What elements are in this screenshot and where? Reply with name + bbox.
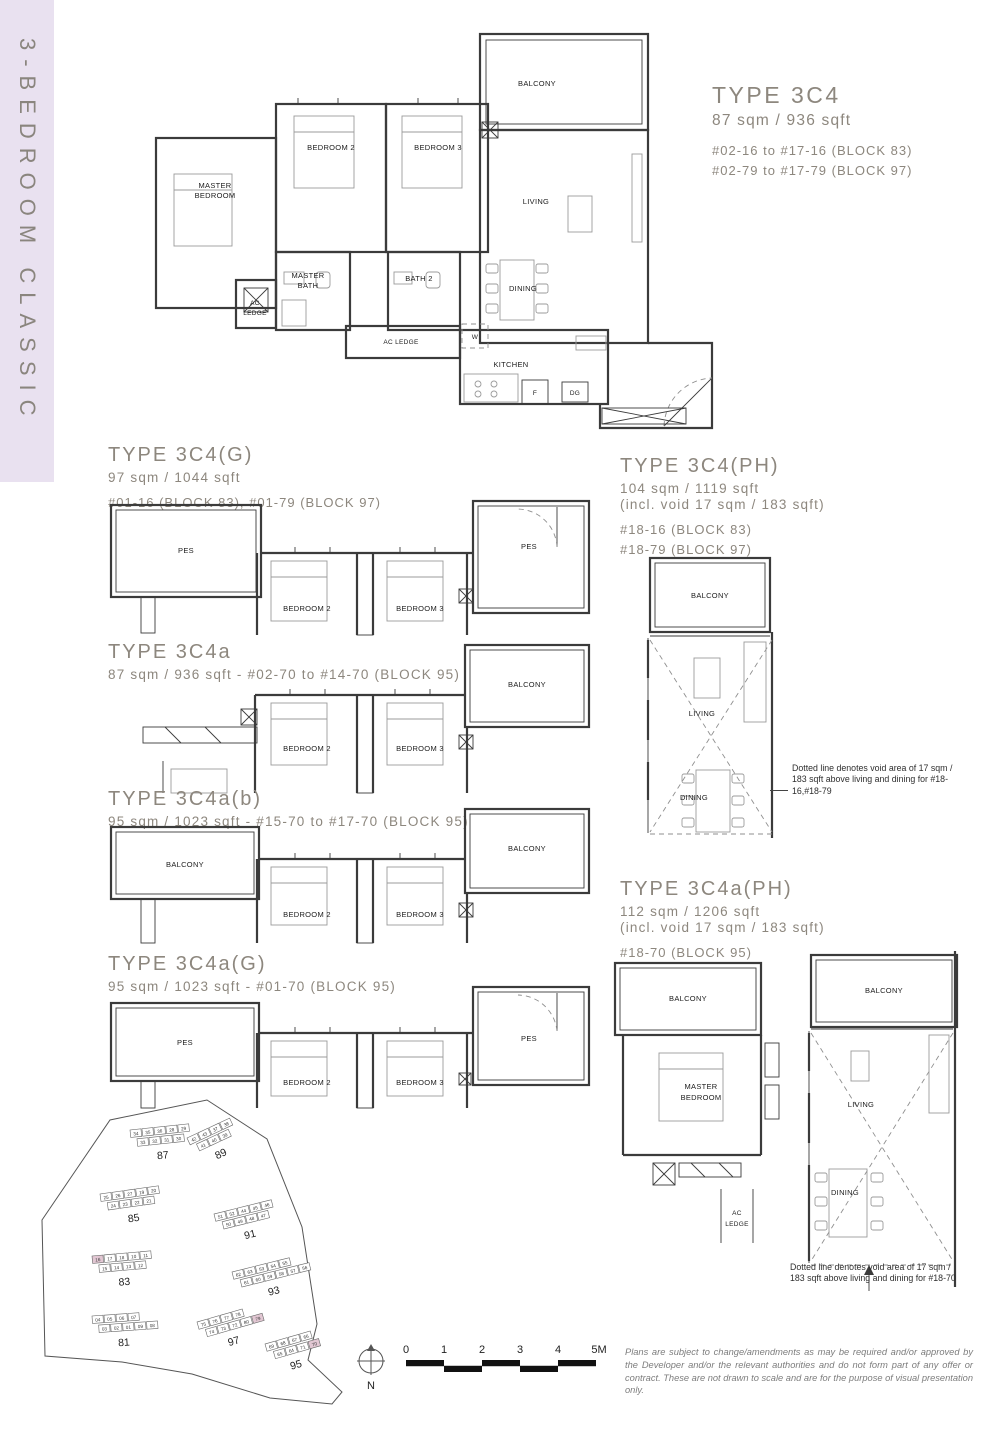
site-stack-label: 09 (138, 1324, 144, 1329)
type-3c4g-title: TYPE 3C4(G) (108, 444, 381, 467)
label-f: F (533, 390, 537, 397)
disclaimer-text: Plans are subject to change/amendments a… (625, 1346, 973, 1397)
label-kitchen: KITCHEN (493, 360, 528, 369)
plan-3c4aph-furniture (659, 1035, 949, 1237)
site-block-number: 93 (267, 1284, 281, 1299)
plan-3c4g-drawing: PES BEDROOM 2 BEDROOM 3 PES (105, 493, 595, 635)
plan-3c4ab-drawing: BALCONY BALCONY BEDROOM 2 BEDROOM 3 (105, 803, 595, 943)
plan-3c4a-labels: BALCONY BEDROOM 2 BEDROOM 3 (283, 680, 546, 753)
site-stack-label: 28 (169, 1127, 175, 1133)
label-pes: PES (178, 546, 194, 555)
site-block-number: 83 (118, 1276, 131, 1289)
site-stack-label: 29 (181, 1126, 187, 1132)
type-3c4-info: TYPE 3C4 87 sqm / 936 sqft #02-16 to #17… (712, 82, 912, 180)
type-3c4aph-title: TYPE 3C4a(PH) (620, 878, 825, 901)
site-stack-label: 07 (131, 1315, 137, 1320)
site-plan-clusters: 3435362829333231308742433738414039892526… (92, 1118, 326, 1378)
label-ac-2: LEDGE (243, 310, 267, 317)
site-stack-label: 18 (119, 1255, 125, 1260)
label-ac-2: LEDGE (725, 1221, 749, 1228)
label-dg: DG (570, 390, 580, 397)
site-stack-label: 14 (114, 1265, 120, 1270)
label-master-1: MASTER (198, 181, 231, 190)
scale-bar: 0 1 2 3 4 5M (398, 1340, 623, 1380)
site-stack-label: 10 (131, 1254, 137, 1259)
site-stack-label: 35 (145, 1130, 151, 1136)
label-bedroom3: BEDROOM 3 (396, 910, 444, 919)
label-pes: PES (177, 1038, 193, 1047)
label-bath2: BATH 2 (405, 274, 433, 283)
site-stack-label: 01 (126, 1325, 132, 1330)
label-balcony: BALCONY (669, 994, 707, 1003)
type-3c4aph-void: (incl. void 17 sqm / 183 sqft) (620, 920, 825, 935)
site-block-number: 85 (127, 1212, 140, 1226)
plan-3c4ph-drawing: BALCONY LIVING DINING (638, 548, 788, 848)
label-living: LIVING (848, 1100, 874, 1109)
label-bedroom2: BEDROOM 2 (307, 143, 355, 152)
site-block-83: 16171810111514131283 (92, 1251, 154, 1291)
label-balcony: BALCONY (691, 591, 729, 600)
north-label: N (367, 1380, 375, 1392)
scale-label-2: 2 (479, 1344, 485, 1356)
label-mbath-1: MASTER (291, 271, 324, 280)
label-pes: PES (521, 542, 537, 551)
site-block-97: 75767778747372807997 (197, 1304, 269, 1356)
label-bedroom3: BEDROOM 3 (396, 744, 444, 753)
site-block-number: 89 (213, 1146, 229, 1162)
label-balcony: BALCONY (508, 680, 546, 689)
label-dining: DINING (680, 793, 708, 802)
site-stack-label: 04 (95, 1317, 101, 1322)
site-block-85: 25262719202423222185 (100, 1186, 163, 1229)
scale-label-3: 3 (517, 1344, 523, 1356)
label-bedroom2: BEDROOM 2 (283, 1078, 331, 1087)
label-ac-1: AC (250, 300, 260, 307)
scale-label-5m: 5M (591, 1344, 606, 1356)
type-3c4aph-area: 112 sqm / 1206 sqft (620, 904, 825, 919)
note-leader-line (770, 790, 788, 791)
category-label: 3-BEDROOM CLASSIC (14, 38, 40, 425)
plan-3c4-walls (156, 34, 712, 428)
site-block-93: 626353545561605958575693 (232, 1253, 315, 1306)
label-mbath-2: BATH (298, 281, 319, 290)
unit-range-line: #02-79 to #17-79 (BLOCK 97) (712, 161, 912, 181)
label-living: LIVING (689, 709, 715, 718)
site-block-81: 04050607030201090881 (92, 1311, 159, 1350)
void-note-3c4ph: Dotted line denotes void area of 17 sqm … (792, 763, 964, 797)
site-block-number: 91 (243, 1228, 257, 1243)
site-stack-label: 06 (119, 1316, 125, 1321)
label-ac-1: AC (732, 1210, 742, 1217)
site-stack-label: 12 (138, 1263, 144, 1268)
site-stack-label: 34 (133, 1131, 139, 1137)
site-block-number: 81 (118, 1336, 131, 1349)
plan-3c4a-walls (143, 645, 589, 793)
label-balcony: BALCONY (865, 986, 903, 995)
site-stack-label: 13 (126, 1264, 132, 1269)
plan-3c4-furniture (174, 116, 642, 402)
site-stack-label: 11 (143, 1253, 149, 1258)
site-block-95: 696867666564717095 (265, 1329, 326, 1377)
plan-3c4-labels: BALCONY BEDROOM 2 BEDROOM 3 MASTER BEDRO… (195, 79, 581, 397)
site-stack-label: 05 (107, 1316, 113, 1321)
site-stack-label: 33 (140, 1140, 146, 1146)
site-stack-label: 17 (107, 1256, 113, 1261)
site-stack-label: 31 (164, 1137, 170, 1143)
label-pes: PES (521, 1034, 537, 1043)
label-bedroom2: BEDROOM 2 (283, 744, 331, 753)
label-balcony: BALCONY (508, 844, 546, 853)
type-3c4-units: #02-16 to #17-16 (BLOCK 83) #02-79 to #1… (712, 141, 912, 180)
label-balcony: BALCONY (166, 860, 204, 869)
label-living: LIVING (523, 197, 549, 206)
label-bedroom2: BEDROOM 2 (283, 910, 331, 919)
label-bedroom2: BEDROOM 2 (283, 604, 331, 613)
site-stack-label: 30 (176, 1136, 182, 1142)
site-plan: 3435362829333231308742433738414039892526… (30, 1092, 375, 1432)
site-block-87: 34353628293332313087 (130, 1124, 192, 1165)
scale-label-0: 0 (403, 1344, 409, 1356)
type-3c4-title: TYPE 3C4 (712, 82, 912, 109)
type-3c4-area: 87 sqm / 936 sqft (712, 112, 912, 130)
unit-range-line: #18-16 (BLOCK 83) (620, 520, 825, 540)
type-3c4ph-void: (incl. void 17 sqm / 183 sqft) (620, 497, 825, 512)
void-note-3c4aph: Dotted line denotes void area of 17 sqm … (790, 1262, 962, 1285)
site-stack-label: 08 (150, 1323, 156, 1328)
scale-label-1: 1 (441, 1344, 447, 1356)
plan-3c4g-walls (111, 501, 589, 635)
label-bedroom3: BEDROOM 3 (396, 604, 444, 613)
site-stack-label: 32 (152, 1138, 158, 1144)
plan-3c4ag-walls (111, 987, 589, 1108)
plan-3c4-drawing: BALCONY BEDROOM 2 BEDROOM 3 MASTER BEDRO… (148, 26, 723, 438)
type-3c4ph-area: 104 sqm / 1119 sqft (620, 481, 825, 496)
plan-3c4aph-drawing: BALCONY MASTER BEDROOM AC LEDGE BALCONY … (603, 943, 973, 1293)
scale-bar-segments (406, 1360, 596, 1372)
plan-3c4a-drawing: BALCONY BEDROOM 2 BEDROOM 3 (105, 643, 595, 793)
site-stack-label: 15 (102, 1266, 108, 1271)
label-master-1: MASTER (684, 1082, 717, 1091)
site-stack-label: 36 (157, 1128, 163, 1134)
site-stack-label: 02 (114, 1325, 120, 1330)
type-3c4ph-info: TYPE 3C4(PH) 104 sqm / 1119 sqft (incl. … (620, 455, 825, 559)
label-acledge: AC LEDGE (383, 339, 419, 346)
site-block-91: 51524445465049484791 (214, 1200, 280, 1248)
unit-range-line: #02-16 to #17-16 (BLOCK 83) (712, 141, 912, 161)
type-3c4ph-title: TYPE 3C4(PH) (620, 455, 825, 478)
label-bedroom3: BEDROOM 3 (414, 143, 462, 152)
label-w: W (472, 334, 479, 341)
label-dining: DINING (831, 1188, 859, 1197)
site-stack-label: 03 (102, 1326, 108, 1331)
label-dining: DINING (509, 284, 537, 293)
site-block-89: 4243373841403989 (187, 1118, 244, 1170)
floorplan-page: 3-BEDROOM CLASSIC (0, 0, 1000, 1434)
site-block-number: 97 (227, 1334, 242, 1349)
plan-3c4ab-walls (111, 809, 589, 943)
label-master-2: BEDROOM (681, 1093, 722, 1102)
site-block-number: 87 (156, 1149, 169, 1162)
north-arrow: N (352, 1344, 392, 1394)
site-stack-label: 16 (95, 1257, 101, 1262)
label-balcony: BALCONY (518, 79, 556, 88)
site-block-number: 95 (289, 1358, 304, 1373)
scale-label-4: 4 (555, 1344, 561, 1356)
category-sidebar: 3-BEDROOM CLASSIC (0, 0, 54, 482)
type-3c4g-area: 97 sqm / 1044 sqft (108, 470, 381, 485)
plan-3c4ag-drawing: PES PES BEDROOM 2 BEDROOM 3 (105, 973, 595, 1108)
label-bedroom3: BEDROOM 3 (396, 1078, 444, 1087)
label-master-2: BEDROOM (195, 191, 236, 200)
